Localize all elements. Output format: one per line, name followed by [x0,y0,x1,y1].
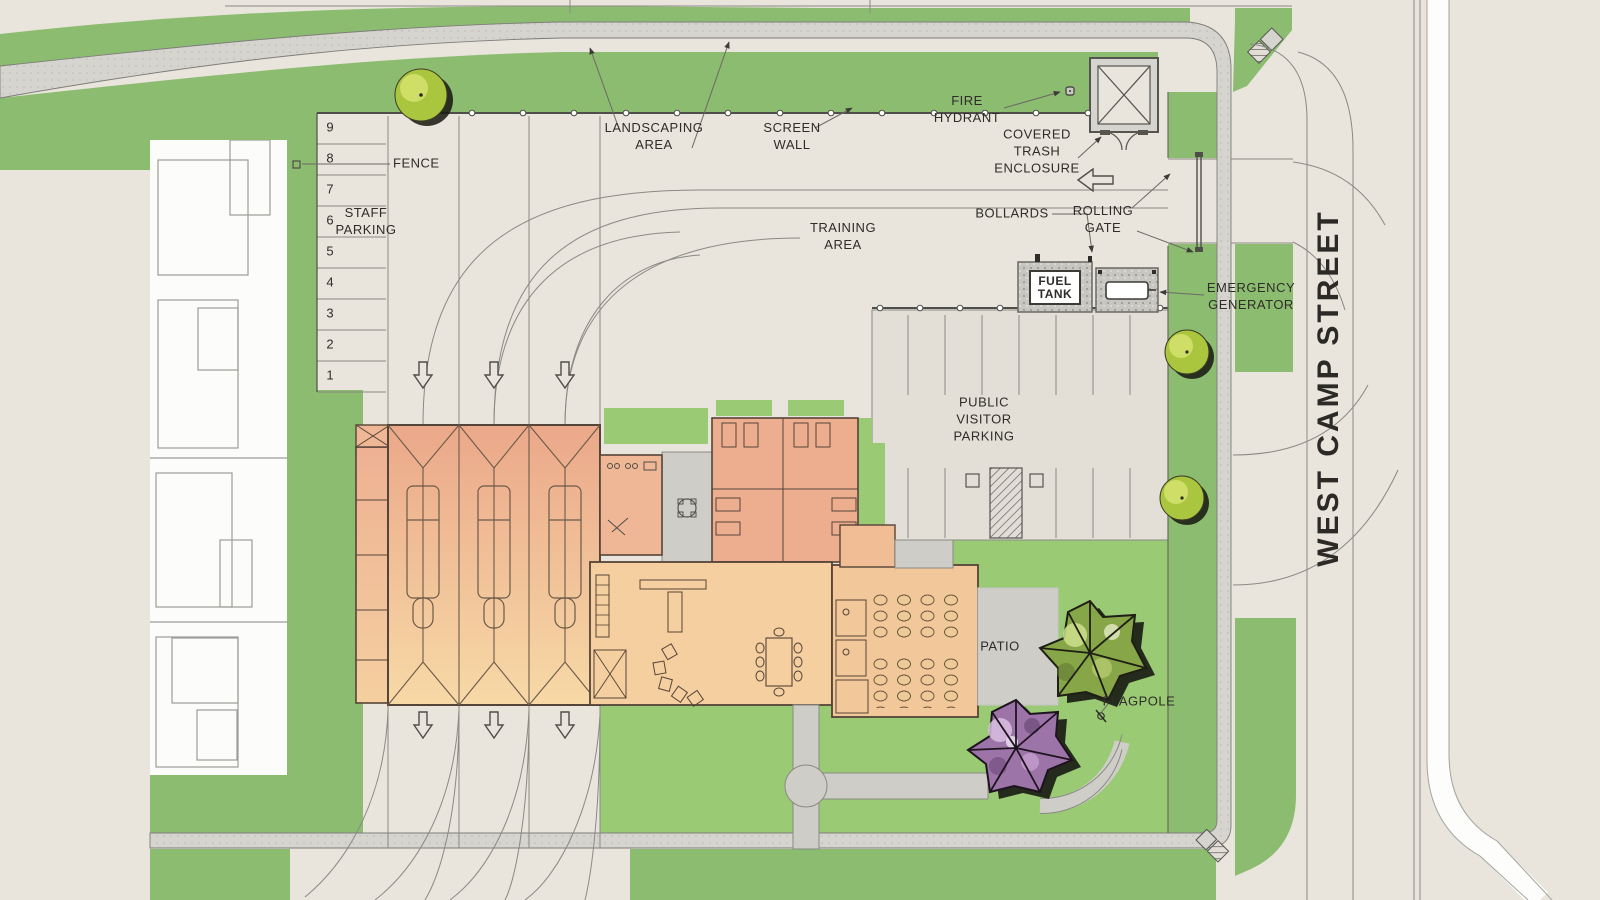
site-plan-page: FENCE STAFF PARKING LANDSCAPING AREA SCR… [0,0,1600,900]
fire-hydrant-icon [1066,87,1074,95]
apparatus-bays [388,425,600,705]
lobby-entry [840,525,895,567]
public-visitor-parking-lot [855,305,1168,540]
site-plan-drawing [0,0,1600,900]
accessible-aisle [990,468,1022,538]
fuel-tank-pad [1018,254,1092,312]
classroom-wing [832,565,978,717]
emergency-generator-pad [1096,268,1158,312]
bunk-room-wing [712,418,858,562]
adjacent-property-lots [150,137,287,775]
gate-driveway [1168,158,1295,244]
dayroom-kitchen-wing [590,562,832,706]
